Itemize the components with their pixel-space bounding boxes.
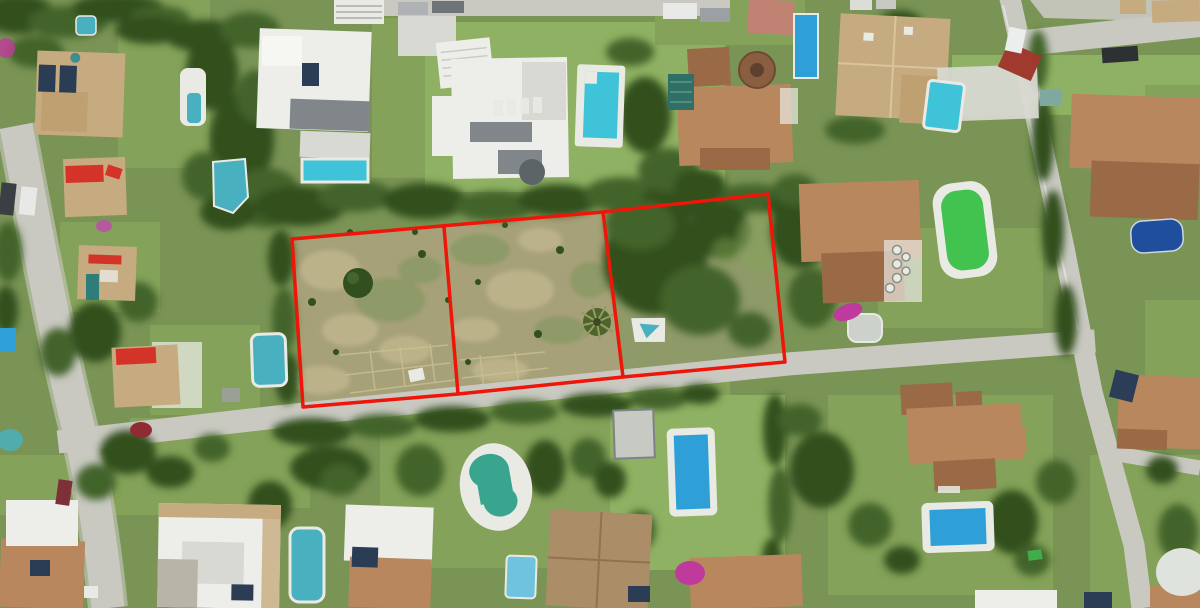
pool [302, 159, 368, 182]
car [432, 1, 464, 13]
car [700, 8, 730, 22]
tree-blob [884, 546, 920, 574]
house-red-awning-1 [63, 157, 127, 217]
tree-blob [1036, 460, 1076, 504]
tree-blob [1146, 456, 1178, 484]
bush [556, 246, 564, 254]
roof-dark-section [470, 122, 532, 142]
bush [333, 349, 339, 355]
bush [465, 359, 471, 365]
palm-centre [593, 318, 601, 326]
plot-tree-highlight [347, 272, 359, 284]
bush [418, 250, 426, 258]
dirt-patch [486, 270, 554, 310]
tree-blob [712, 238, 740, 262]
tree-blob [660, 265, 740, 335]
solar-panels [59, 65, 77, 93]
plunge-pool [1040, 90, 1061, 106]
patio-table [893, 260, 902, 269]
pool [923, 80, 965, 132]
roof-edge [261, 505, 281, 608]
pool [76, 16, 96, 35]
tree-blob [76, 464, 116, 500]
hedge-blob [490, 400, 558, 424]
stone [533, 97, 542, 113]
tree-blob [728, 312, 772, 348]
pool [0, 328, 16, 352]
roof-wing [999, 427, 1026, 454]
roof-wing [41, 91, 88, 133]
roof-wing [1117, 429, 1168, 451]
pool-green [930, 179, 999, 281]
house-roof [1120, 0, 1146, 14]
tree-blob [320, 464, 360, 496]
dirt-patch [451, 318, 499, 342]
villa-top-left [35, 50, 126, 137]
bougainvillea [96, 220, 112, 232]
round-terrace [519, 159, 545, 185]
tree-blob [606, 38, 654, 66]
bougainvillea [675, 561, 705, 585]
solar-panels [352, 547, 379, 568]
plot-pool [631, 316, 667, 344]
pool [86, 274, 99, 300]
hedge-blob [628, 388, 688, 410]
solar-panels [231, 584, 253, 600]
patio-table [893, 274, 902, 283]
hedge-blob [268, 230, 294, 286]
tree-blob [848, 503, 892, 547]
tree-blob [825, 116, 885, 144]
hedge-blob [1042, 190, 1064, 270]
chimney [863, 32, 873, 41]
hedge-blob [348, 414, 416, 438]
hedge-blob [317, 180, 393, 212]
bush [502, 222, 508, 228]
patio [300, 131, 371, 159]
terrace [84, 586, 98, 598]
solar-panels [30, 560, 50, 576]
bush [308, 298, 316, 306]
pool-step [585, 71, 597, 83]
solar-panels [628, 586, 650, 602]
grass-patch [534, 316, 586, 344]
roof-wing [1090, 160, 1200, 220]
tree-blob [594, 462, 626, 498]
roof-section [262, 36, 302, 66]
tree-blob [778, 404, 822, 436]
pool [1130, 218, 1184, 254]
solar-panels [1084, 592, 1112, 608]
dirt-patch [322, 314, 378, 346]
roof-edge [159, 503, 281, 519]
pool [251, 333, 287, 386]
solar-panels [38, 65, 56, 93]
stone [520, 98, 529, 114]
paving [780, 88, 798, 124]
car [850, 0, 872, 10]
stone [507, 99, 516, 115]
red-awning [116, 347, 157, 365]
tree-blob [146, 456, 194, 488]
bush [534, 330, 542, 338]
house-roof [1152, 0, 1200, 23]
hedge-blob [272, 418, 352, 446]
roof-dark-section [290, 99, 371, 132]
tree-blob [194, 434, 230, 462]
sun-lounger [938, 486, 960, 493]
pergola [613, 409, 655, 458]
house-bottom-left-large [157, 503, 281, 608]
tree-blob [790, 432, 854, 508]
hedge-blob [768, 467, 792, 543]
grass-patch [398, 256, 442, 284]
tree-blob [396, 444, 444, 496]
patio-table [893, 246, 902, 255]
chimney [904, 27, 913, 35]
house-roof [689, 554, 803, 608]
car [1102, 46, 1139, 63]
terrace [100, 270, 118, 283]
red-awning [65, 165, 104, 183]
pool [929, 508, 986, 546]
hedge-blob [680, 384, 720, 404]
hedge-blob [383, 183, 467, 219]
pool-bottom-right [921, 501, 995, 553]
grass-patch [450, 234, 510, 266]
patio-table [886, 284, 895, 293]
patio-table [902, 267, 910, 275]
lawn-patch [1145, 300, 1200, 380]
building-roof [975, 590, 1057, 608]
pool [290, 528, 324, 602]
tree-blob [674, 169, 726, 201]
van [663, 3, 697, 19]
car [398, 2, 428, 15]
tree-blob [40, 328, 76, 376]
roof-section [157, 559, 198, 608]
house-bottom-solar [342, 504, 434, 608]
roof [1069, 94, 1200, 172]
pool [794, 14, 818, 78]
pool [475, 467, 514, 504]
aerial-scene: Aerial satellite view of a residential v… [0, 0, 1200, 608]
hedge-blob [1055, 284, 1077, 356]
plot-tree [343, 268, 373, 298]
car [19, 186, 38, 216]
garden-item-green [1027, 549, 1042, 561]
stone [494, 100, 503, 116]
turret-top [750, 63, 764, 77]
solar-panel [302, 63, 319, 86]
tree-blob [619, 77, 671, 153]
white-roof [6, 500, 78, 546]
dirt-patch [518, 228, 562, 252]
pool [187, 93, 201, 123]
roof-wing [700, 148, 770, 170]
satellite-image: Aerial satellite view of a residential v… [0, 0, 1200, 608]
red-awning [88, 254, 121, 264]
hedge-blob [414, 406, 490, 432]
pool [674, 434, 711, 509]
pool [505, 555, 536, 598]
patio-table [902, 253, 910, 261]
pool-rect-centre [666, 427, 717, 517]
red-bush [130, 422, 152, 438]
car [876, 0, 896, 9]
bush [475, 279, 481, 285]
neighbour-roof [747, 0, 795, 35]
garden-shed [222, 388, 240, 402]
pool-centre [575, 64, 626, 148]
